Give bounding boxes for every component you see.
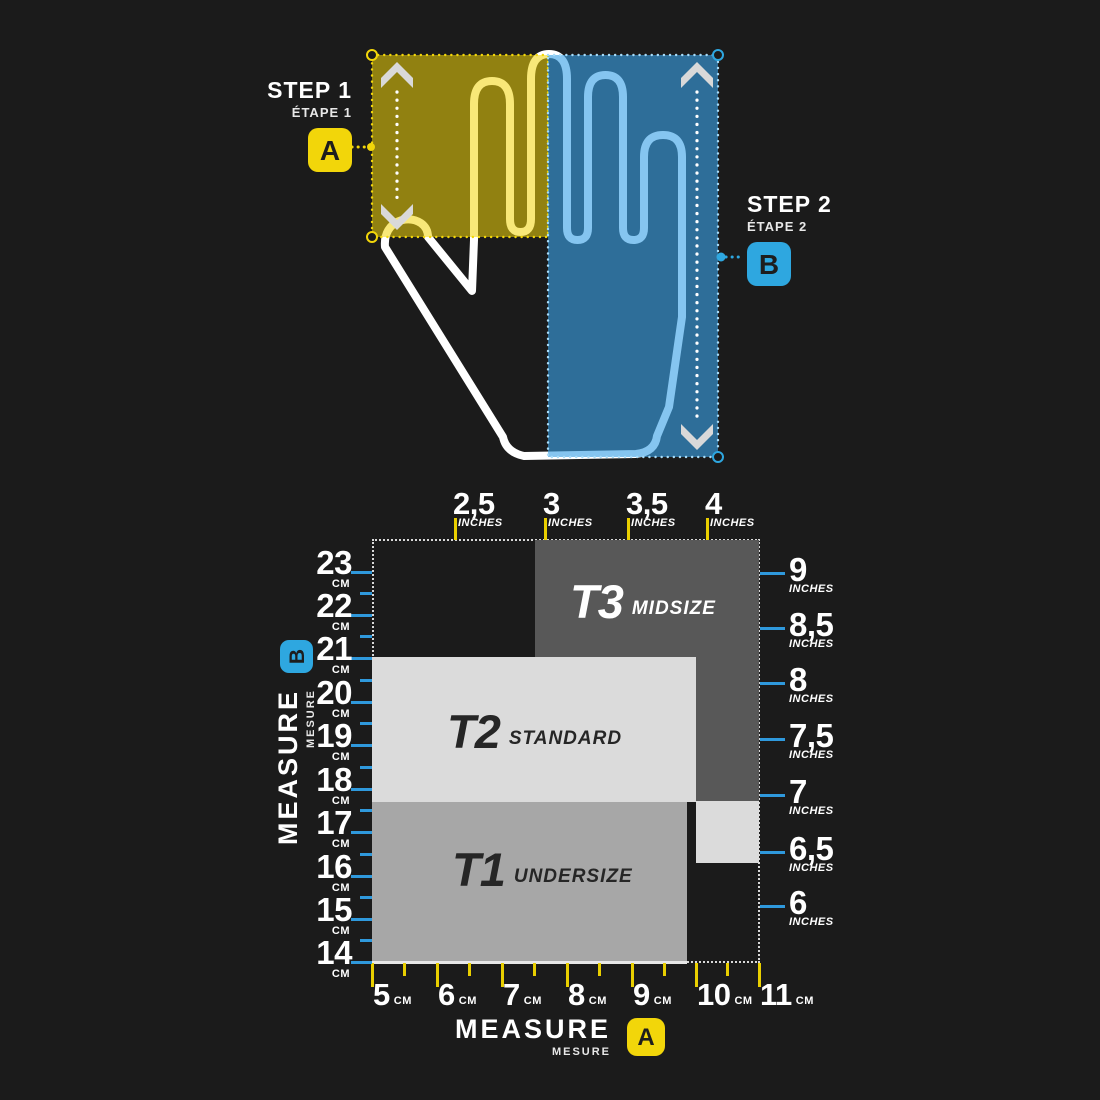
left-axis-title-label: MEASURE bbox=[275, 689, 302, 845]
right-axis-tick bbox=[760, 905, 785, 908]
top-axis-tick bbox=[544, 518, 547, 540]
bottom-axis-minor-tick bbox=[598, 963, 601, 976]
bottom-axis-tick bbox=[371, 963, 374, 987]
bottom-axis-tick bbox=[631, 963, 634, 987]
right-axis-tick bbox=[760, 627, 785, 630]
left-axis-tick bbox=[351, 831, 372, 834]
left-axis-tick bbox=[351, 961, 372, 964]
top-axis-label: 3,5INCHES bbox=[626, 490, 676, 529]
top-axis-tick bbox=[454, 518, 457, 540]
width-measure-overlay bbox=[372, 55, 548, 237]
measure-b-badge: B bbox=[747, 242, 791, 286]
chart-baseline bbox=[372, 961, 687, 964]
left-axis-tick bbox=[351, 918, 372, 921]
measure-a-badge: A bbox=[308, 128, 352, 172]
bottom-axis-minor-tick bbox=[533, 963, 536, 976]
zone-t1-code: T1 bbox=[452, 849, 505, 891]
left-axis-label: 16CM bbox=[296, 853, 352, 894]
step1-block: STEP 1 ÉTAPE 1 A bbox=[232, 78, 352, 172]
left-axis-label: 15CM bbox=[296, 896, 352, 937]
left-axis-tick bbox=[351, 614, 372, 617]
zone-t3-label: T3 MIDSIZE bbox=[570, 581, 716, 623]
left-axis-tick bbox=[351, 875, 372, 878]
top-axis-tick bbox=[706, 518, 709, 540]
step1-title: STEP 1 bbox=[232, 78, 352, 102]
bottom-axis-label: 9CM bbox=[633, 980, 672, 1010]
bottom-axis-label: 7CM bbox=[503, 980, 542, 1010]
zone-t3-column bbox=[696, 657, 759, 801]
left-axis-minor-tick bbox=[360, 722, 372, 725]
left-axis-title-sublabel: MESURE bbox=[305, 689, 317, 845]
zone-t3-code: T3 bbox=[570, 581, 623, 623]
bottom-axis-label: 8CM bbox=[568, 980, 607, 1010]
bottom-axis-minor-tick bbox=[403, 963, 406, 976]
glove-size-guide: { "colors":{ "background":"#1b1b1b", "ac… bbox=[0, 0, 1100, 1100]
right-axis-label: 8INCHES bbox=[789, 666, 834, 705]
left-axis-minor-tick bbox=[360, 939, 372, 942]
zone-t2-overlap-block bbox=[696, 801, 759, 863]
left-axis-tick bbox=[351, 788, 372, 791]
bottom-axis-label: 6CM bbox=[438, 980, 477, 1010]
zone-t2-label: T2 STANDARD bbox=[447, 711, 622, 753]
top-axis-label: 4INCHES bbox=[705, 490, 755, 529]
bottom-axis-minor-tick bbox=[726, 963, 729, 976]
badge-b-connector bbox=[717, 253, 744, 262]
bottom-axis-label: 11CM bbox=[760, 980, 814, 1010]
bottom-axis-label: 5CM bbox=[373, 980, 412, 1010]
step1-subtitle: ÉTAPE 1 bbox=[232, 105, 352, 120]
bottom-axis-a-badge: A bbox=[627, 1018, 665, 1056]
bottom-axis-title: MEASURE MESURE A bbox=[455, 1016, 665, 1058]
right-axis-tick bbox=[760, 682, 785, 685]
left-axis-minor-tick bbox=[360, 809, 372, 812]
zone-t3-name: MIDSIZE bbox=[632, 598, 716, 623]
right-axis-tick bbox=[760, 738, 785, 741]
left-axis-minor-tick bbox=[360, 592, 372, 595]
right-axis-label: 8,5INCHES bbox=[789, 611, 834, 650]
left-axis-tick bbox=[351, 701, 372, 704]
bottom-axis-tick bbox=[501, 963, 504, 987]
bottom-axis-title-label: MEASURE bbox=[455, 1016, 611, 1043]
zone-t1-name: UNDERSIZE bbox=[514, 866, 633, 891]
left-axis-tick bbox=[351, 657, 372, 660]
top-axis-label: 3INCHES bbox=[543, 490, 593, 529]
left-axis-label: 14CM bbox=[296, 939, 352, 980]
left-axis-tick bbox=[351, 744, 372, 747]
right-axis-label: 7INCHES bbox=[789, 778, 834, 817]
right-axis-tick bbox=[760, 794, 785, 797]
step2-subtitle: ÉTAPE 2 bbox=[747, 219, 867, 234]
bottom-axis-minor-tick bbox=[468, 963, 471, 976]
hand-measurement-figure bbox=[290, 26, 810, 486]
left-axis-label: 23CM bbox=[296, 549, 352, 590]
left-axis-title: MEASURE MESURE B bbox=[275, 625, 317, 845]
bottom-axis-tick bbox=[436, 963, 439, 987]
top-axis-label: 2,5INCHES bbox=[453, 490, 503, 529]
right-axis-tick bbox=[760, 572, 785, 575]
right-axis-label: 6INCHES bbox=[789, 889, 834, 928]
step2-title: STEP 2 bbox=[747, 192, 867, 216]
left-axis-b-badge: B bbox=[280, 640, 313, 673]
zone-t1-label: T1 UNDERSIZE bbox=[452, 849, 633, 891]
left-axis-tick bbox=[351, 571, 372, 574]
left-axis-minor-tick bbox=[360, 896, 372, 899]
left-axis-minor-tick bbox=[360, 853, 372, 856]
zone-t2-name: STANDARD bbox=[509, 728, 622, 753]
left-axis-minor-tick bbox=[360, 766, 372, 769]
right-axis-label: 9INCHES bbox=[789, 556, 834, 595]
top-axis-tick bbox=[627, 518, 630, 540]
badge-a-connector bbox=[352, 143, 375, 151]
bottom-axis-minor-tick bbox=[663, 963, 666, 976]
right-axis-label: 7,5INCHES bbox=[789, 722, 834, 761]
bottom-axis-title-sublabel: MESURE bbox=[455, 1046, 611, 1058]
zone-t2-code: T2 bbox=[447, 711, 500, 753]
bottom-axis-tick bbox=[566, 963, 569, 987]
left-axis-minor-tick bbox=[360, 679, 372, 682]
right-axis-label: 6,5INCHES bbox=[789, 835, 834, 874]
bottom-axis-label: 10CM bbox=[697, 980, 753, 1010]
step2-block: STEP 2 ÉTAPE 2 B bbox=[747, 192, 867, 286]
left-axis-minor-tick bbox=[360, 635, 372, 638]
length-measure-overlay bbox=[548, 55, 718, 457]
bottom-axis-tick bbox=[758, 963, 761, 987]
right-axis-tick bbox=[760, 851, 785, 854]
bottom-axis-tick bbox=[695, 963, 698, 987]
